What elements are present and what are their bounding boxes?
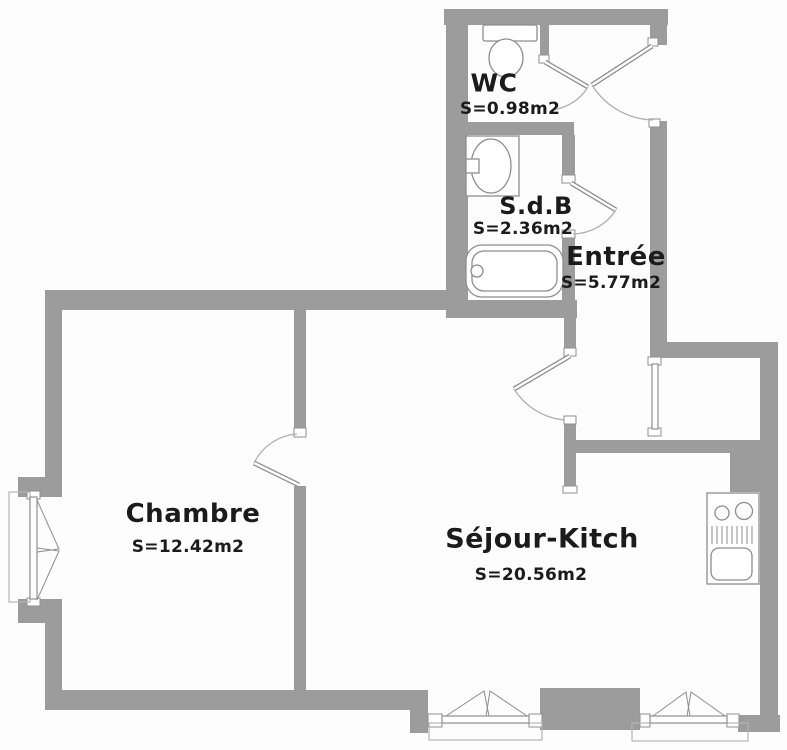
room-area-sejour: S=20.56m2 [475,565,588,585]
bathtub-drain [471,265,483,277]
chambre-door [254,434,299,485]
window2-sash-left [653,692,690,716]
wall-window-center-block [540,688,640,730]
room-label-chambre: Chambre [126,499,261,529]
sejour-door-arc [514,389,564,420]
wall-corridor-left-upper [564,318,576,350]
window2-sash-right [687,692,725,716]
left-window-sash-bottom [37,548,59,600]
left-window-sill [9,492,30,602]
entrance-door-leaf-fill [592,46,652,85]
left-window-sash-top [37,500,59,552]
room-label-wc: WC [471,69,518,98]
floor-plan-drawing [0,0,787,750]
room-label-sejour: Séjour-Kitch [445,524,639,555]
wall-duct-block [730,440,778,492]
wall-middle [45,290,452,310]
window1-sash-left [446,691,489,716]
sejour-door-leaf-fill [514,356,570,389]
sejour-door [514,356,570,420]
wall-window1-step-block [410,690,428,733]
sdb-door-arc [573,210,616,234]
floor-plan: WC S=0.98m2 S.d.B S=2.36m2 Entrée S=5.77… [0,0,787,750]
bathtub-icon [466,245,563,297]
wall-bottom-left [45,690,423,710]
bathtub-inner [472,251,557,291]
entrance-door [592,46,653,120]
sdb-door-leaf-fill [571,183,616,210]
toilet-tank [483,25,537,41]
sejour-door-jamb-bottom [564,416,576,424]
kitchen-burner-small [715,506,729,520]
wall-sdb-right-upper [562,135,575,177]
chambre-door-arc [254,434,297,463]
window1-sill [429,723,542,740]
wc-door-leaf-fill [545,62,588,87]
wall-closet-bottom [576,440,730,453]
kitchen-unit-icon [707,493,759,584]
door-jambs [27,38,739,727]
chambre-door-leaf-fill [254,463,299,485]
left-window-pane [30,497,37,599]
washbasin-icon [466,136,519,196]
room-area-wc: S=0.98m2 [460,99,560,119]
window1-jamb-right [529,714,542,727]
wall-top [444,9,668,25]
wall-right [760,358,778,732]
wall-divider-lower [294,486,306,690]
wall-entree-right [650,121,667,358]
wall-wc-right [540,25,549,58]
wall-divider-upper [294,310,306,430]
window1-pane [442,716,529,723]
wall-wc-bottom [446,122,574,135]
room-area-sdb: S=2.36m2 [473,219,573,239]
sejour-door-jamb-top [564,348,576,356]
kitchen-burner-large [736,503,753,520]
wall-left-upper [45,290,62,477]
kitchen-sink-basin [711,548,752,580]
window1-jamb-left [428,714,442,727]
walls [18,9,780,733]
wall-strip-left [446,9,468,310]
window2-jamb-left [640,714,650,727]
window2-pane [650,716,727,723]
window1-sash-right [486,691,527,716]
corridor-wall-end-cap [563,486,577,493]
sdb-door [571,183,616,234]
window2-jamb-right [727,714,739,727]
closet-door-panel [652,364,658,429]
wall-step-out [650,342,778,358]
room-label-entree: Entrée [566,242,666,272]
wall-sdb-bottom [446,300,577,318]
wall-corridor-left-lower [564,424,576,493]
chambre-door-jamb [294,428,306,437]
room-label-sdb: S.d.B [499,192,573,220]
washbasin-tap [466,159,479,173]
room-area-chambre: S=12.42m2 [132,537,245,557]
room-area-entree: S=5.77m2 [561,273,661,293]
entrance-door-arc [592,85,653,120]
